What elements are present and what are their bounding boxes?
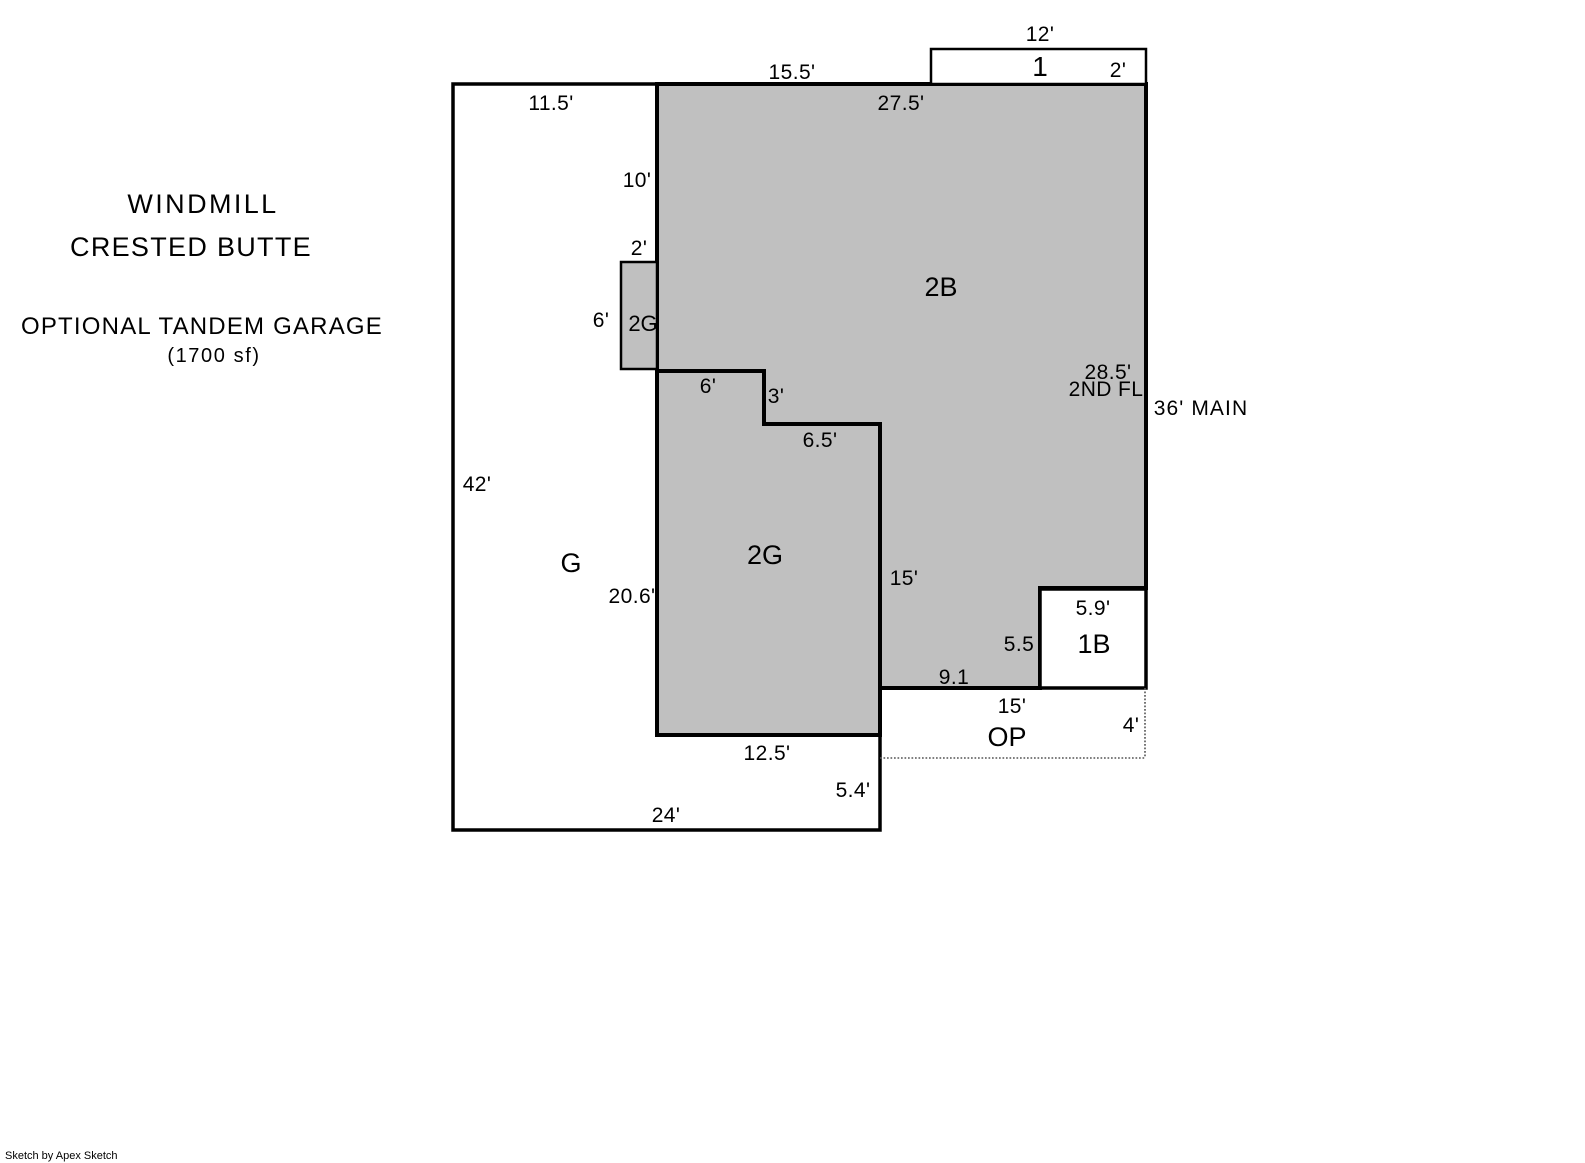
svg-text:6.5': 6.5' <box>803 429 838 452</box>
svg-text:36' MAIN: 36' MAIN <box>1154 397 1249 420</box>
svg-text:15.5': 15.5' <box>769 61 816 84</box>
svg-text:42': 42' <box>463 473 492 496</box>
svg-text:1: 1 <box>1032 51 1048 82</box>
svg-text:6': 6' <box>593 309 610 332</box>
svg-text:5.5: 5.5 <box>1004 633 1034 656</box>
svg-text:5.9': 5.9' <box>1076 597 1111 620</box>
svg-text:2ND FL: 2ND FL <box>1069 378 1144 401</box>
svg-text:OP: OP <box>987 722 1026 752</box>
svg-text:2B: 2B <box>924 272 957 302</box>
svg-text:15': 15' <box>998 695 1027 718</box>
svg-text:(1700 sf): (1700 sf) <box>167 345 260 367</box>
svg-text:G: G <box>560 548 581 578</box>
svg-text:1B: 1B <box>1077 629 1110 659</box>
svg-text:12': 12' <box>1026 23 1055 46</box>
svg-text:3': 3' <box>768 385 785 408</box>
svg-text:CRESTED BUTTE: CRESTED BUTTE <box>70 232 312 262</box>
svg-text:6': 6' <box>700 375 717 398</box>
svg-text:11.5': 11.5' <box>528 92 573 115</box>
svg-text:2': 2' <box>631 237 648 260</box>
svg-text:24': 24' <box>652 804 681 827</box>
svg-text:27.5': 27.5' <box>878 92 925 115</box>
svg-text:2G: 2G <box>747 540 783 570</box>
svg-text:2': 2' <box>1110 59 1127 82</box>
svg-text:9.1: 9.1 <box>939 666 969 689</box>
svg-text:4': 4' <box>1123 714 1140 737</box>
svg-text:20.6': 20.6' <box>609 585 656 608</box>
svg-text:10': 10' <box>623 169 652 192</box>
svg-text:Sketch by Apex Sketch: Sketch by Apex Sketch <box>5 1150 118 1162</box>
svg-text:15': 15' <box>890 567 919 590</box>
svg-text:OPTIONAL TANDEM GARAGE: OPTIONAL TANDEM GARAGE <box>21 313 383 340</box>
svg-text:WINDMILL: WINDMILL <box>127 189 278 219</box>
svg-text:12.5': 12.5' <box>744 742 791 765</box>
svg-text:2G: 2G <box>628 311 657 336</box>
svg-text:5.4': 5.4' <box>836 779 871 802</box>
